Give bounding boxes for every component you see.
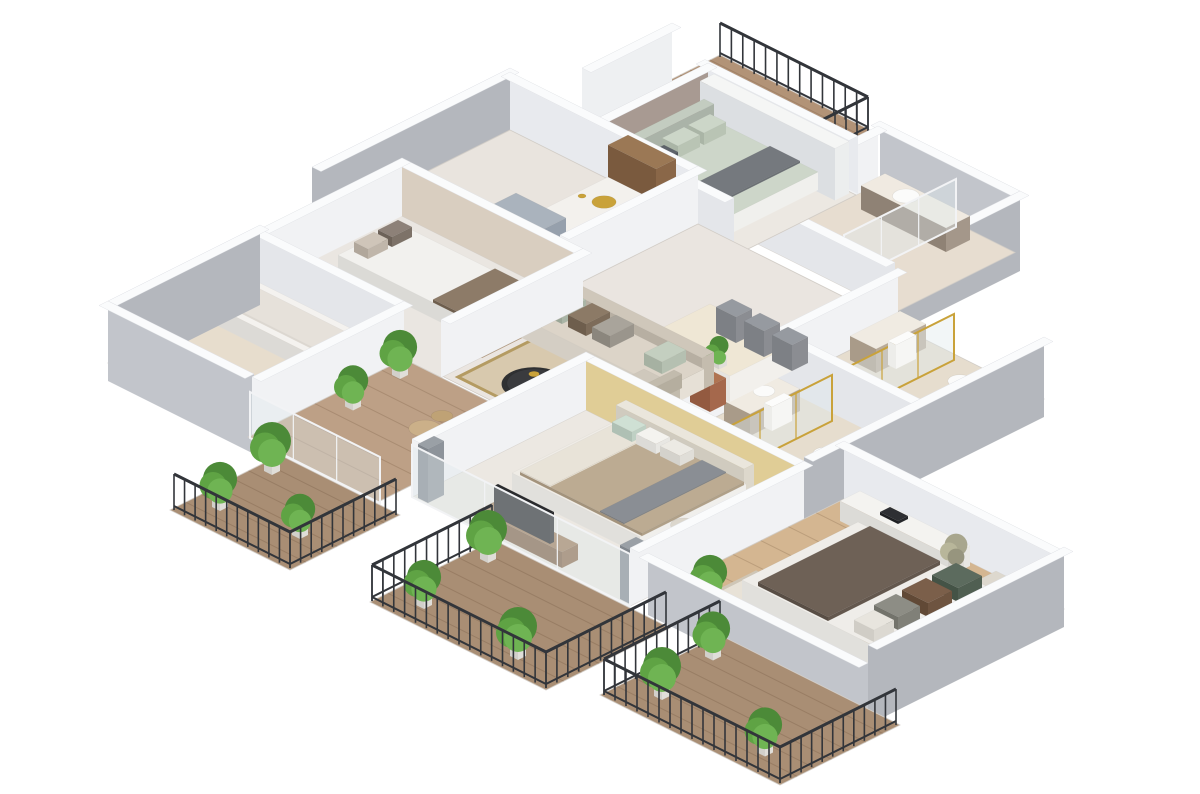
kitchen-faucet xyxy=(578,194,586,198)
hallway-rattan-chair-back xyxy=(431,410,453,421)
floor-plan-canvas xyxy=(0,0,1200,794)
kitchen-sink xyxy=(592,196,616,209)
floor-plan-stage xyxy=(0,0,1200,794)
